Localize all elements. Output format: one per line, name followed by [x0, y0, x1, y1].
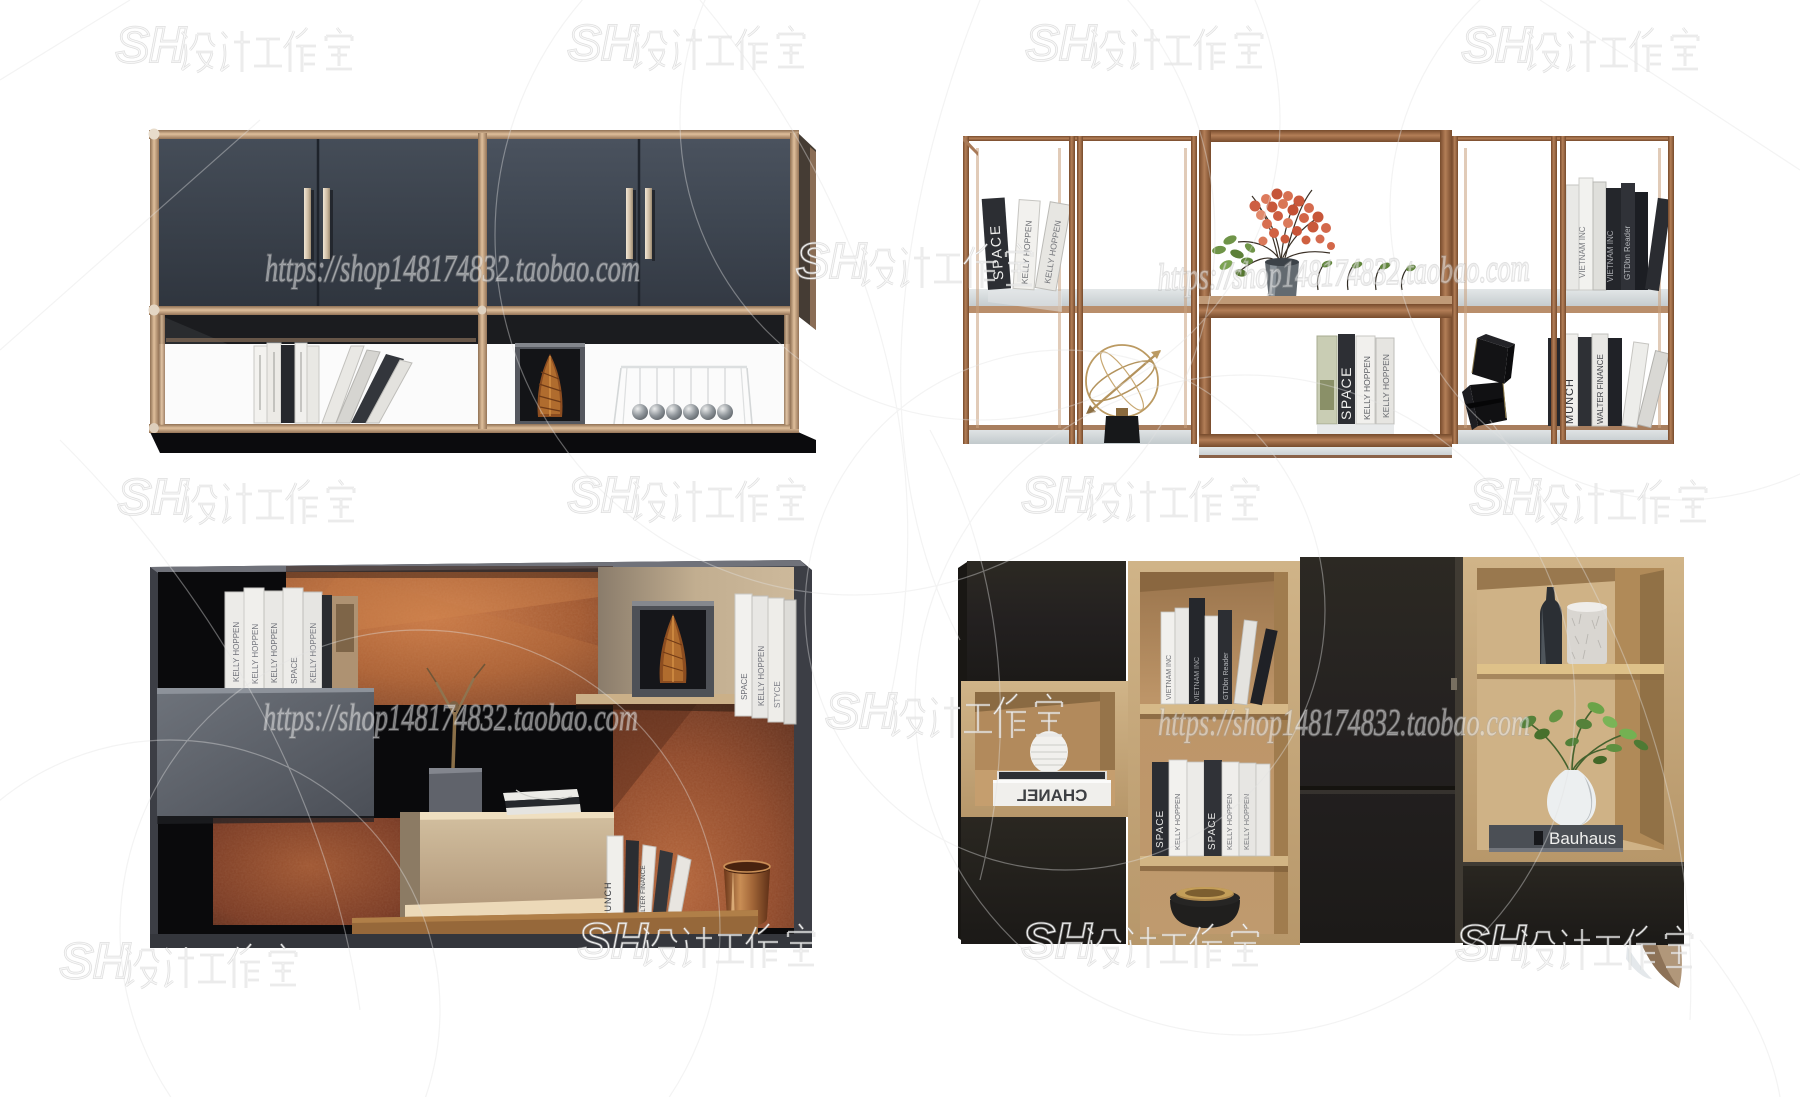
svg-text:SPACE: SPACE	[1155, 810, 1166, 848]
svg-text:VIETNAM INC: VIETNAM INC	[1166, 655, 1173, 700]
svg-text:KELLY HOPPEN: KELLY HOPPEN	[757, 646, 766, 706]
svg-text:GTDbn Reader: GTDbn Reader	[1223, 652, 1230, 700]
svg-text:KELLY HOPPEN: KELLY HOPPEN	[1173, 794, 1182, 850]
svg-text:KELLY HOPPEN: KELLY HOPPEN	[251, 624, 260, 684]
svg-text:KELLY HOPPEN: KELLY HOPPEN	[1225, 794, 1234, 850]
svg-text:VIETNAM INC: VIETNAM INC	[1606, 230, 1615, 282]
svg-text:https://shop148174832.taobao.c: https://shop148174832.taobao.com	[265, 248, 640, 290]
svg-text:CHANEL: CHANEL	[1017, 786, 1088, 805]
svg-text:VIETNAM INC: VIETNAM INC	[1578, 226, 1587, 278]
svg-text:Bauhaus: Bauhaus	[1549, 829, 1616, 848]
svg-text:KELLY HOPPEN: KELLY HOPPEN	[1242, 794, 1251, 850]
svg-text:https://shop148174832.taobao.c: https://shop148174832.taobao.com	[263, 697, 638, 739]
svg-text:SPACE: SPACE	[740, 673, 749, 700]
svg-text:SPACE: SPACE	[1207, 812, 1218, 850]
svg-text:SPACE: SPACE	[290, 657, 299, 684]
svg-text:KELLY HOPPEN: KELLY HOPPEN	[270, 623, 279, 683]
svg-text:STYCE: STYCE	[773, 681, 782, 708]
svg-text:KELLY HOPPEN: KELLY HOPPEN	[1362, 356, 1372, 420]
svg-text:https://shop148174832.taobao.c: https://shop148174832.taobao.com	[1158, 702, 1530, 744]
svg-text:WALTER FINANCE: WALTER FINANCE	[1596, 354, 1605, 424]
svg-text:VIETNAM INC: VIETNAM INC	[1194, 657, 1201, 702]
svg-text:GTDbn Reader: GTDbn Reader	[1623, 225, 1632, 280]
svg-text:KELLY HOPPEN: KELLY HOPPEN	[309, 623, 318, 683]
